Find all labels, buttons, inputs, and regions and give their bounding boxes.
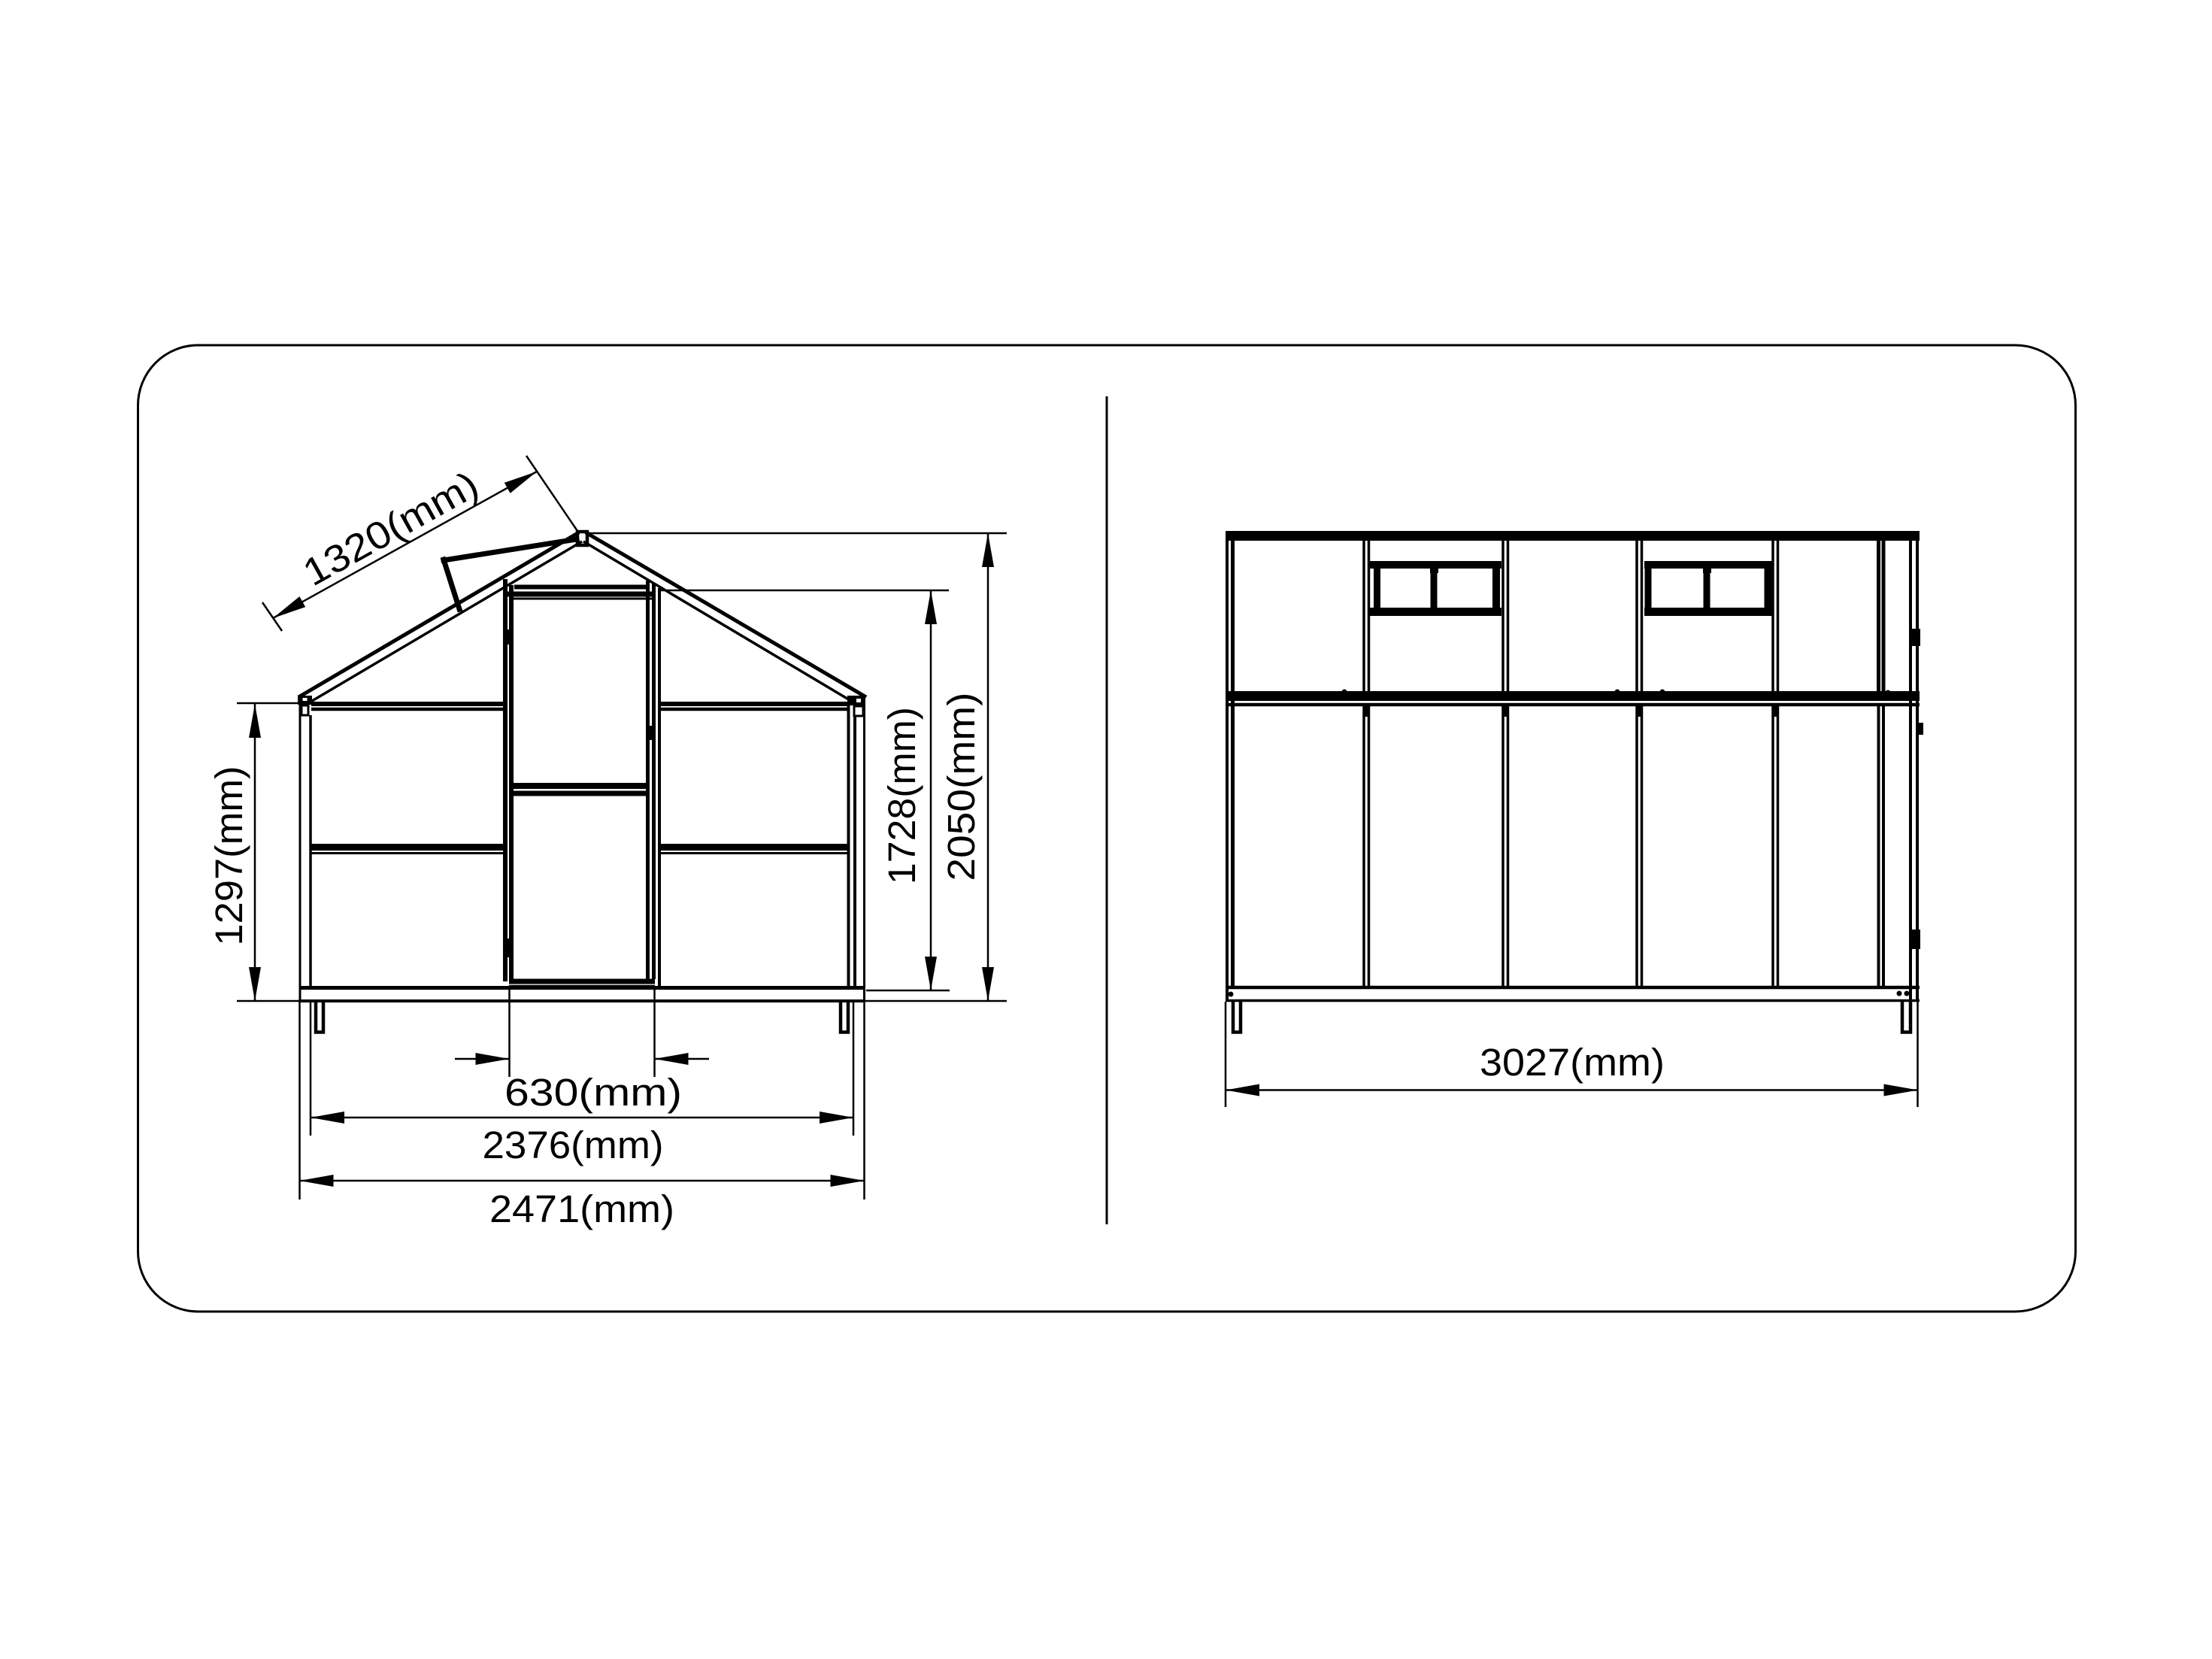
svg-text:1297(mm): 1297(mm) <box>208 766 250 946</box>
svg-text:1728(mm): 1728(mm) <box>880 707 923 884</box>
svg-text:2471(mm): 2471(mm) <box>489 1187 674 1230</box>
svg-text:3027(mm): 3027(mm) <box>1480 1041 1665 1084</box>
svg-text:630(mm): 630(mm) <box>505 1071 682 1114</box>
svg-text:2376(mm): 2376(mm) <box>483 1124 664 1166</box>
svg-text:2050(mm): 2050(mm) <box>940 693 983 881</box>
